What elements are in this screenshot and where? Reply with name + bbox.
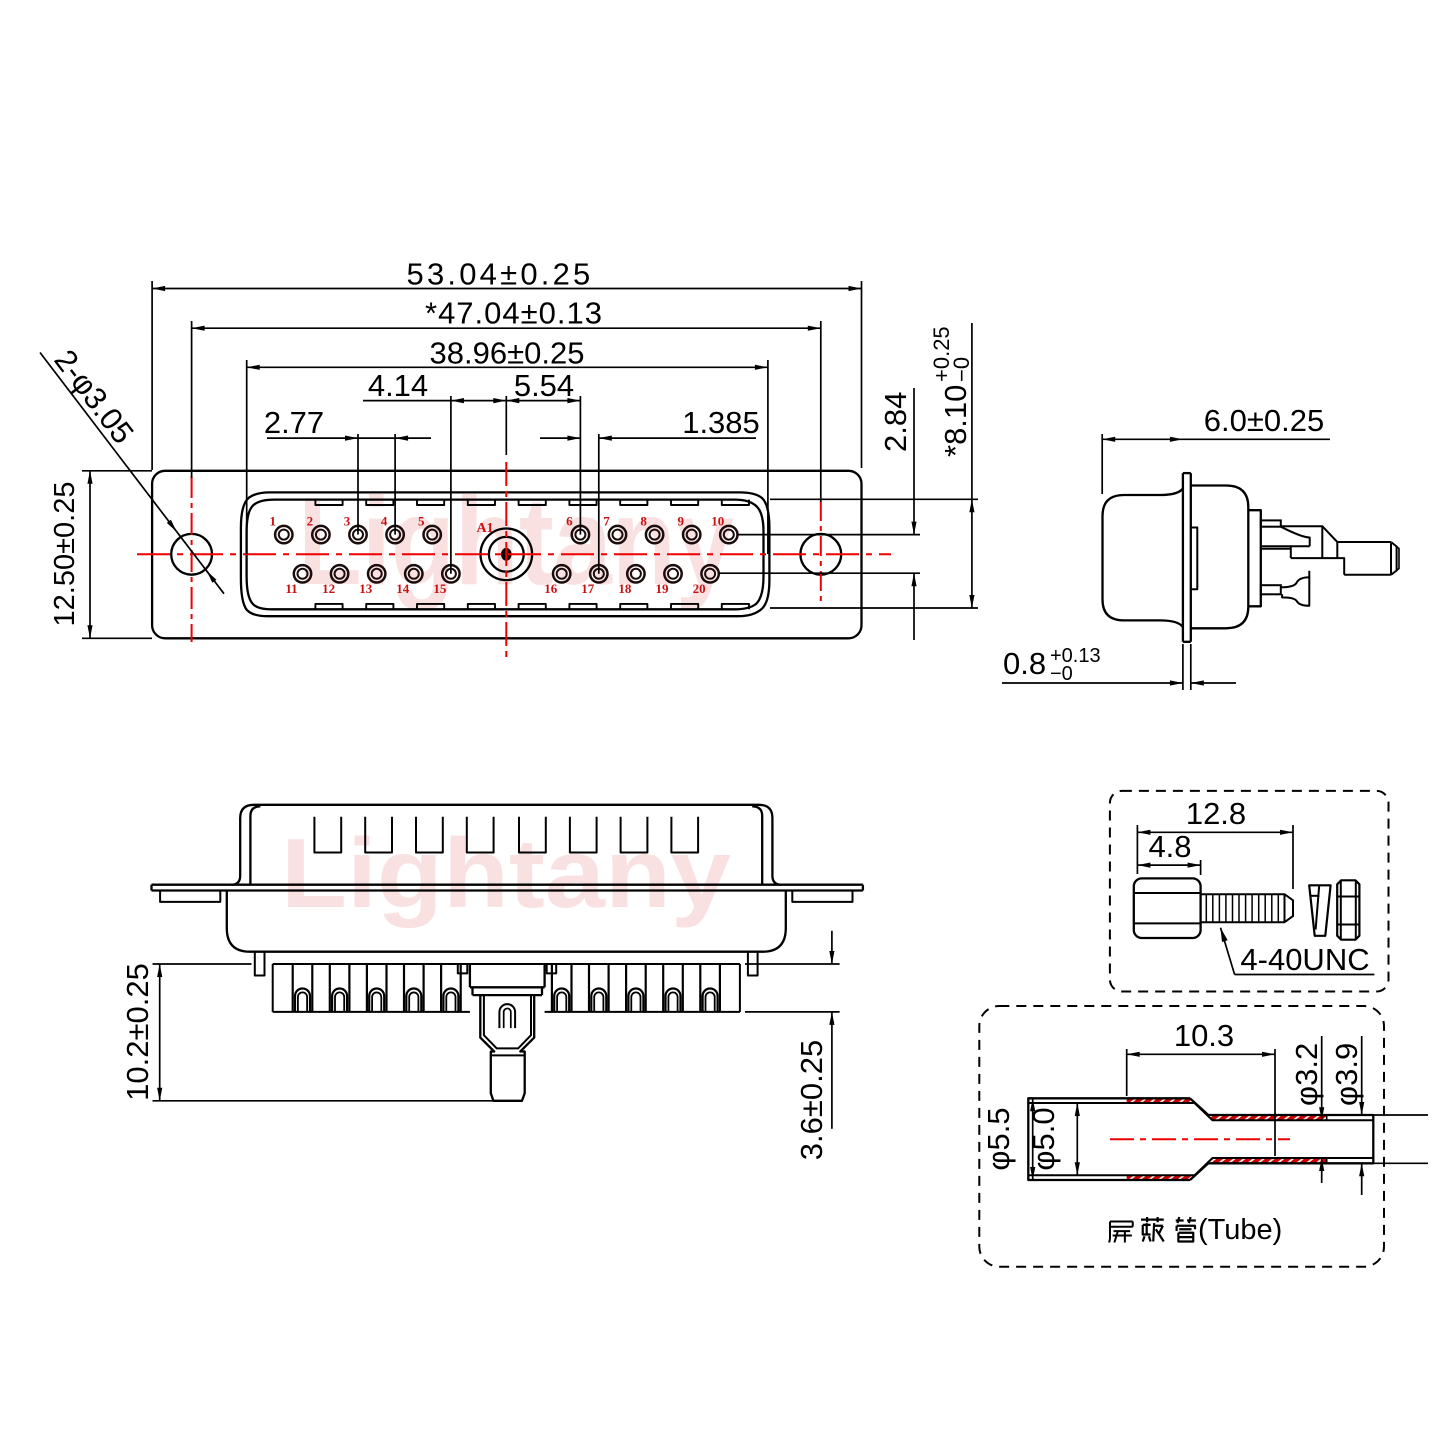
svg-text:5: 5 xyxy=(418,514,425,529)
svg-text:1: 1 xyxy=(270,514,277,529)
svg-text:4.14: 4.14 xyxy=(368,368,428,403)
svg-text:12.50±0.25: 12.50±0.25 xyxy=(49,482,81,627)
svg-text:4: 4 xyxy=(381,514,388,529)
svg-text:Lightany: Lightany xyxy=(281,818,731,928)
svg-text:10.2±0.25: 10.2±0.25 xyxy=(120,963,155,1101)
svg-text:8: 8 xyxy=(640,514,647,529)
svg-text:12.8: 12.8 xyxy=(1186,796,1246,831)
svg-text:3: 3 xyxy=(344,514,351,529)
svg-text:2.77: 2.77 xyxy=(264,405,324,440)
svg-text:4.8: 4.8 xyxy=(1148,829,1191,864)
svg-text:4-40UNC: 4-40UNC xyxy=(1240,942,1369,977)
svg-text:φ5.5: φ5.5 xyxy=(981,1107,1016,1170)
svg-text:6: 6 xyxy=(566,514,573,529)
svg-text:5.54: 5.54 xyxy=(514,368,574,403)
svg-text:6.0±0.25: 6.0±0.25 xyxy=(1204,403,1324,438)
svg-text:*47.04±0.13: *47.04±0.13 xyxy=(425,296,603,331)
svg-text:2: 2 xyxy=(307,514,314,529)
svg-text:−0: −0 xyxy=(949,357,974,382)
svg-text:20: 20 xyxy=(693,581,706,596)
svg-text:1.385: 1.385 xyxy=(682,405,760,440)
svg-text:0.8: 0.8 xyxy=(1003,646,1046,681)
svg-text:13: 13 xyxy=(359,581,373,596)
svg-text:10: 10 xyxy=(711,514,724,529)
svg-text:*8.10: *8.10 xyxy=(938,385,973,457)
svg-text:15: 15 xyxy=(433,581,447,596)
svg-text:(Tube): (Tube) xyxy=(1198,1214,1282,1246)
svg-text:7: 7 xyxy=(603,514,610,529)
svg-text:38.96±0.25: 38.96±0.25 xyxy=(430,336,585,371)
svg-text:17: 17 xyxy=(581,581,595,596)
svg-text:53.04±0.25: 53.04±0.25 xyxy=(407,257,594,292)
svg-text:9: 9 xyxy=(677,514,684,529)
svg-text:18: 18 xyxy=(618,581,632,596)
svg-text:A1: A1 xyxy=(476,521,493,536)
svg-text:10.3: 10.3 xyxy=(1174,1018,1234,1053)
svg-text:16: 16 xyxy=(544,581,558,596)
svg-text:14: 14 xyxy=(396,581,410,596)
svg-text:φ3.9: φ3.9 xyxy=(1329,1043,1364,1106)
svg-text:φ3.2: φ3.2 xyxy=(1289,1043,1324,1106)
svg-text:12: 12 xyxy=(322,581,335,596)
svg-text:19: 19 xyxy=(656,581,670,596)
svg-text:3.6±0.25: 3.6±0.25 xyxy=(794,1040,829,1160)
svg-text:φ5.0: φ5.0 xyxy=(1026,1107,1061,1170)
svg-text:2.84: 2.84 xyxy=(878,392,913,452)
svg-text:−0: −0 xyxy=(1050,663,1073,685)
svg-text:11: 11 xyxy=(285,581,297,596)
